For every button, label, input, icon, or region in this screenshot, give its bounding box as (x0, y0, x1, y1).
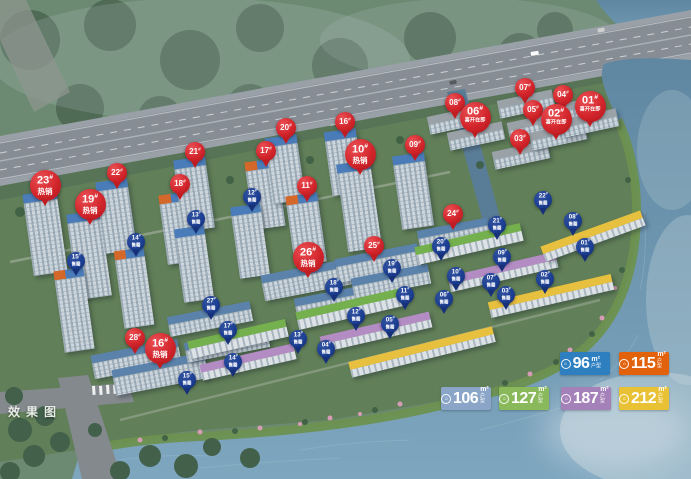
marker-building-02[interactable]: 02#喜开在即 (541, 104, 572, 135)
building-number: 17# (260, 147, 272, 155)
building-number: 24# (447, 210, 459, 218)
marker-building-16[interactable]: 16#热销 (145, 333, 176, 364)
legend-type-label: 户型 (591, 363, 601, 368)
legend-type-label: 户型 (538, 393, 544, 403)
marker-building-19[interactable]: 19#售罄 (383, 259, 401, 277)
status-label: 喜开在即 (465, 118, 486, 123)
marker-building-27[interactable]: 27#售罄 (202, 296, 220, 314)
status-label: 售罄 (581, 248, 590, 253)
marker-building-01[interactable]: 01#售罄 (576, 238, 594, 256)
legend-item-96sqm: ⌂96m²户型 (560, 352, 610, 375)
legend-item-187sqm: ⌂187m²户型 (561, 387, 611, 410)
building-number: 16# (152, 338, 168, 350)
building-number: 13# (191, 211, 200, 218)
building-number: 09# (497, 249, 506, 256)
status-label: 热销 (301, 260, 316, 268)
legend-area-value: 212 (631, 390, 656, 408)
number-suffix: # (312, 246, 316, 253)
status-label: 售罄 (132, 243, 141, 248)
number-suffix: # (94, 193, 98, 200)
number-suffix: # (198, 211, 200, 215)
legend-unit: m² (591, 356, 600, 363)
legend-item-127sqm: ⌂127m²户型 (499, 387, 549, 410)
building-number: 01# (582, 95, 598, 107)
number-suffix: # (456, 209, 459, 214)
marker-building-11[interactable]: 11#售罄 (396, 286, 414, 304)
number-suffix: # (528, 83, 531, 88)
marker-building-19[interactable]: 19#热销 (75, 189, 106, 220)
legend-type-label: 户型 (657, 358, 663, 368)
building-number: 05# (527, 106, 539, 114)
marker-building-09[interactable]: 09#售罄 (493, 248, 511, 266)
building-number: 06# (467, 106, 483, 118)
status-label: 售罄 (440, 300, 449, 305)
marker-building-07[interactable]: 07# (515, 78, 535, 98)
legend-item-106sqm: ⌂106m²户型 (441, 387, 491, 410)
status-label: 售罄 (330, 288, 339, 293)
number-suffix: # (183, 179, 186, 184)
number-suffix: # (566, 90, 569, 95)
status-label: 售罄 (322, 350, 331, 355)
marker-building-09[interactable]: 09# (405, 135, 425, 155)
building-number: 20# (436, 238, 445, 245)
legend-type-label: 户型 (600, 393, 606, 403)
number-suffix: # (523, 134, 526, 139)
status-label: 售罄 (569, 222, 578, 227)
number-suffix: # (328, 341, 330, 345)
number-suffix: # (560, 107, 564, 114)
legend-area-value: 106 (453, 390, 478, 408)
building-number: 18# (329, 279, 338, 286)
building-number: 18# (174, 180, 186, 188)
house-icon: ⌂ (441, 394, 451, 404)
site-rendering: 23#热销19#热销10#热销26#热销16#热销06#喜开在即02#喜开在即0… (0, 0, 691, 479)
status-label: 售罄 (401, 296, 410, 301)
marker-building-07[interactable]: 07#售罄 (482, 273, 500, 291)
marker-building-11[interactable]: 11# (297, 176, 317, 196)
building-number: 11# (401, 287, 410, 294)
building-number: 10# (352, 144, 368, 156)
marker-building-04[interactable]: 04#售罄 (317, 340, 335, 358)
marker-building-04[interactable]: 04# (553, 85, 573, 105)
number-suffix: # (587, 239, 589, 243)
status-label: 热销 (38, 188, 53, 196)
status-label: 售罄 (207, 306, 216, 311)
marker-building-18[interactable]: 18# (170, 174, 190, 194)
building-number: 21# (189, 148, 201, 156)
house-icon: ⌂ (619, 394, 629, 404)
marker-building-24[interactable]: 24# (443, 204, 463, 224)
status-label: 喜开在即 (546, 120, 567, 125)
marker-building-03[interactable]: 03# (510, 129, 530, 149)
house-icon: ⌂ (619, 359, 629, 369)
number-suffix: # (358, 308, 360, 312)
building-number: 11# (301, 182, 312, 190)
status-label: 售罄 (294, 340, 303, 345)
building-number: 23# (37, 175, 53, 187)
building-number: 02# (548, 108, 564, 120)
building-number: 08# (568, 213, 577, 220)
marker-building-17[interactable]: 17#售罄 (219, 321, 237, 339)
building-number: 14# (228, 354, 237, 361)
marker-building-20[interactable]: 20#售罄 (432, 237, 450, 255)
marker-building-20[interactable]: 20# (276, 118, 296, 138)
marker-building-22[interactable]: 22#售罄 (534, 191, 552, 209)
status-label: 售罄 (539, 201, 548, 206)
marker-building-28[interactable]: 28# (125, 328, 145, 348)
building-number: 12# (351, 308, 360, 315)
status-label: 售罄 (72, 262, 81, 267)
building-number: 12# (247, 189, 256, 196)
marker-building-13[interactable]: 13#售罄 (289, 330, 307, 348)
number-suffix: # (189, 372, 191, 376)
watermark-label: 效果图 (8, 403, 62, 420)
number-suffix: # (120, 168, 123, 173)
number-suffix: # (594, 94, 598, 101)
building-number: 28# (129, 334, 141, 342)
legend-type-label: 户型 (480, 393, 486, 403)
marker-building-10[interactable]: 10#热销 (345, 139, 376, 170)
marker-building-13[interactable]: 13#售罄 (187, 210, 205, 228)
marker-building-05[interactable]: 05#售罄 (381, 315, 399, 333)
marker-building-14[interactable]: 14#售罄 (127, 233, 145, 251)
status-label: 热销 (83, 207, 98, 215)
building-number: 16# (339, 118, 351, 126)
number-suffix: # (377, 241, 380, 246)
status-label: 售罄 (493, 226, 502, 231)
building-number: 22# (111, 169, 123, 177)
legend-area-value: 115 (631, 355, 655, 373)
building-number: 25# (368, 242, 380, 250)
number-suffix: # (458, 268, 460, 272)
status-label: 热销 (353, 157, 368, 165)
building-number: 02# (540, 271, 549, 278)
marker-building-26[interactable]: 26#热销 (293, 242, 324, 273)
marker-building-12[interactable]: 12#售罄 (243, 188, 261, 206)
marker-building-02[interactable]: 02#售罄 (536, 270, 554, 288)
building-number: 15# (182, 372, 191, 379)
number-suffix: # (138, 333, 141, 338)
building-number: 15# (71, 253, 80, 260)
number-suffix: # (164, 337, 168, 344)
building-number: 19# (82, 194, 98, 206)
number-suffix: # (348, 117, 351, 122)
number-suffix: # (49, 174, 53, 181)
building-number: 27# (206, 297, 215, 304)
status-label: 售罄 (452, 277, 461, 282)
building-number: 03# (501, 287, 510, 294)
building-number: 14# (131, 234, 140, 241)
number-suffix: # (300, 331, 302, 335)
status-label: 售罄 (183, 381, 192, 386)
marker-building-17[interactable]: 17# (256, 141, 276, 161)
building-number: 20# (280, 124, 292, 132)
building-number: 22# (538, 192, 547, 199)
marker-building-10[interactable]: 10#售罄 (447, 267, 465, 285)
number-suffix: # (446, 291, 448, 295)
number-suffix: # (443, 238, 445, 242)
building-number: 03# (514, 135, 526, 143)
status-label: 售罄 (487, 283, 496, 288)
marker-building-12[interactable]: 12#售罄 (347, 307, 365, 325)
number-suffix: # (138, 234, 140, 238)
building-number: 05# (385, 316, 394, 323)
number-suffix: # (336, 279, 338, 283)
marker-building-01[interactable]: 01#喜开在即 (575, 91, 606, 122)
marker-building-05[interactable]: 05# (523, 100, 543, 120)
legend-area-value: 187 (573, 390, 598, 408)
building-number: 06# (439, 291, 448, 298)
marker-building-21[interactable]: 21#售罄 (488, 216, 506, 234)
building-number: 21# (492, 217, 501, 224)
status-label: 售罄 (502, 296, 511, 301)
number-suffix: # (479, 105, 483, 112)
marker-building-06[interactable]: 06#喜开在即 (460, 102, 491, 133)
marker-building-23[interactable]: 23#热销 (30, 170, 61, 201)
status-label: 售罄 (224, 331, 233, 336)
status-label: 售罄 (229, 363, 238, 368)
status-label: 售罄 (437, 247, 446, 252)
building-number: 01# (580, 239, 589, 246)
number-suffix: # (418, 140, 421, 145)
legend-item-212sqm: ⌂212m²户型 (619, 387, 669, 410)
number-suffix: # (493, 274, 495, 278)
legend-item-115sqm: ⌂115m²户型 (619, 352, 669, 375)
number-suffix: # (547, 271, 549, 275)
marker-building-21[interactable]: 21# (185, 142, 205, 162)
building-number: 04# (321, 341, 330, 348)
marker-building-06[interactable]: 06#售罄 (435, 290, 453, 308)
number-suffix: # (289, 123, 292, 128)
house-icon: ⌂ (561, 359, 571, 369)
number-suffix: # (364, 143, 368, 150)
number-suffix: # (407, 287, 409, 291)
number-suffix: # (213, 297, 215, 301)
number-suffix: # (392, 316, 394, 320)
status-label: 售罄 (192, 220, 201, 225)
marker-building-22[interactable]: 22# (107, 163, 127, 183)
status-label: 喜开在即 (580, 107, 601, 112)
building-number: 19# (387, 260, 396, 267)
marker-building-14[interactable]: 14#售罄 (224, 353, 242, 371)
legend-type-label: 户型 (658, 393, 664, 403)
marker-building-16[interactable]: 16# (335, 112, 355, 132)
building-number: 26# (300, 247, 316, 259)
building-number: 09# (409, 141, 421, 149)
house-icon: ⌂ (561, 394, 571, 404)
marker-building-15[interactable]: 15#售罄 (178, 371, 196, 389)
legend-area-value: 127 (511, 390, 536, 408)
building-number: 13# (293, 331, 302, 338)
number-suffix: # (536, 105, 539, 110)
number-suffix: # (575, 213, 577, 217)
number-suffix: # (230, 322, 232, 326)
number-suffix: # (235, 354, 237, 358)
marker-building-08[interactable]: 08#售罄 (564, 212, 582, 230)
status-label: 热销 (153, 351, 168, 359)
number-suffix: # (499, 217, 501, 221)
number-suffix: # (545, 192, 547, 196)
number-suffix: # (394, 260, 396, 264)
marker-building-03[interactable]: 03#售罄 (497, 286, 515, 304)
building-number: 17# (223, 322, 232, 329)
status-label: 售罄 (352, 317, 361, 322)
building-number: 04# (557, 91, 569, 99)
marker-building-15[interactable]: 15#售罄 (67, 252, 85, 270)
legend-area-value: 96 (573, 355, 590, 373)
status-label: 售罄 (541, 280, 550, 285)
number-suffix: # (508, 287, 510, 291)
status-label: 售罄 (498, 258, 507, 263)
building-number: 10# (451, 268, 460, 275)
house-icon: ⌂ (499, 394, 509, 404)
number-suffix: # (458, 98, 461, 103)
status-label: 售罄 (386, 325, 395, 330)
building-number: 08# (449, 99, 461, 107)
marker-building-25[interactable]: 25# (364, 236, 384, 256)
number-suffix: # (269, 146, 272, 151)
status-label: 售罄 (248, 198, 257, 203)
number-suffix: # (78, 253, 80, 257)
number-suffix: # (504, 249, 506, 253)
building-number: 07# (486, 274, 495, 281)
building-number: 07# (519, 84, 531, 92)
number-suffix: # (254, 189, 256, 193)
marker-building-18[interactable]: 18#售罄 (325, 278, 343, 296)
number-suffix: # (198, 147, 201, 152)
number-suffix: # (310, 181, 313, 186)
status-label: 售罄 (388, 269, 397, 274)
